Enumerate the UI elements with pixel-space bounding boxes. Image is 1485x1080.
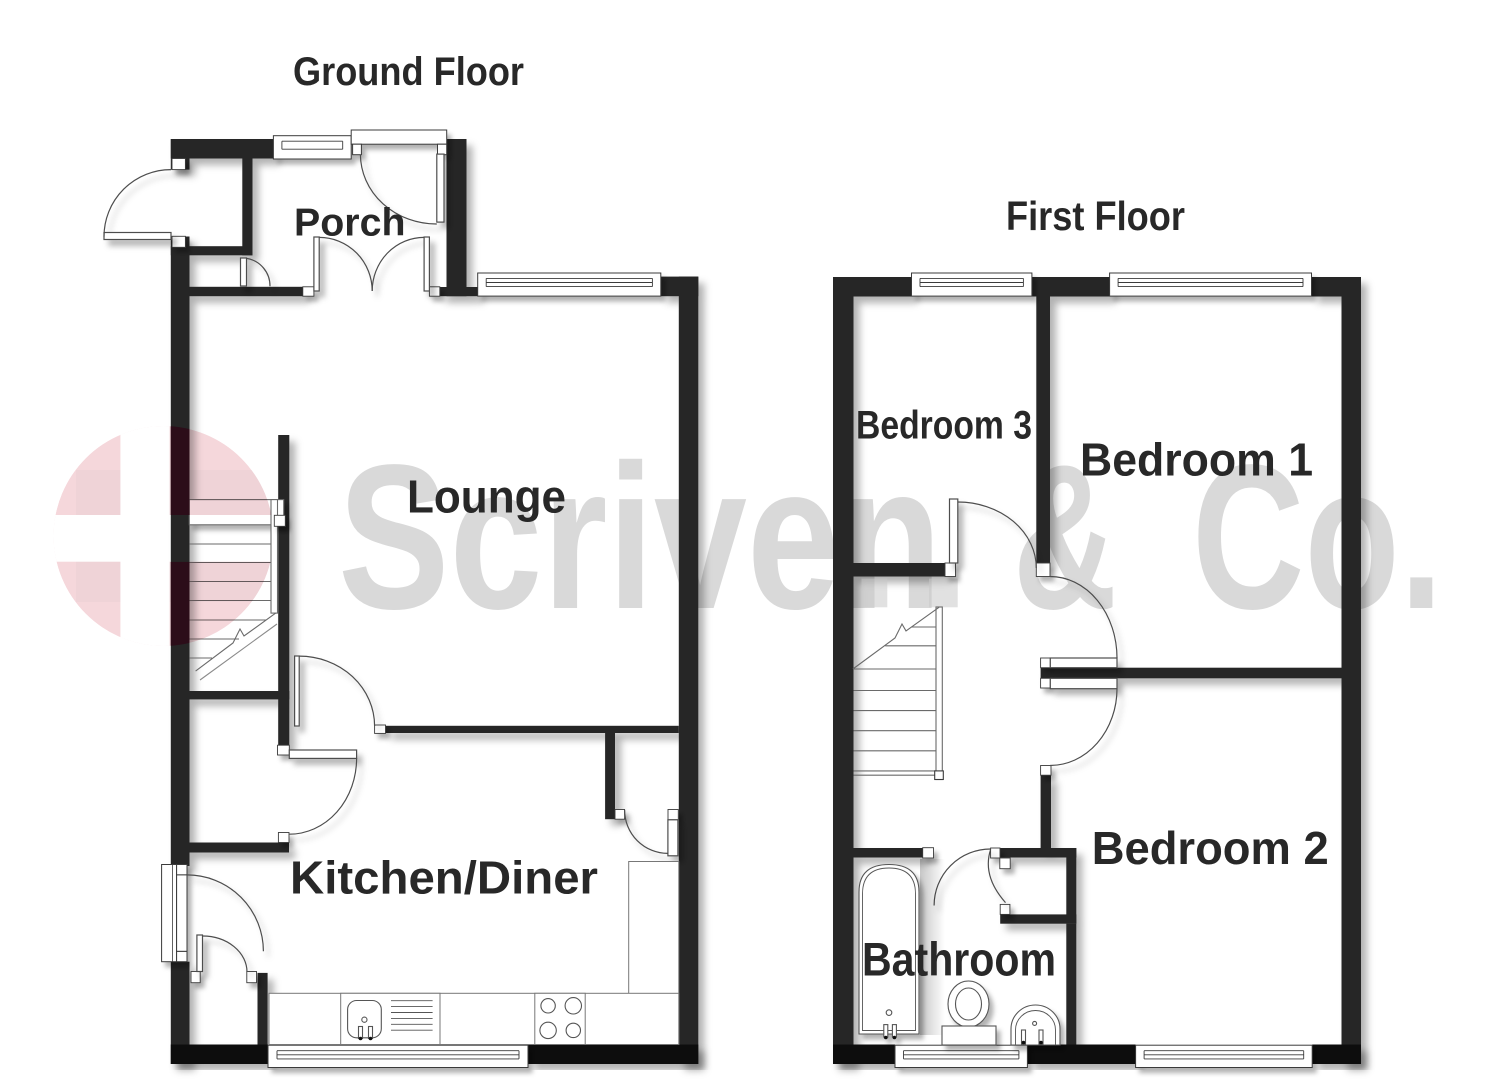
svg-text:First Floor: First Floor (1006, 193, 1185, 239)
svg-text:Kitchen/Diner: Kitchen/Diner (290, 851, 598, 903)
svg-text:Bedroom 1: Bedroom 1 (1080, 434, 1313, 486)
svg-text:Porch: Porch (294, 202, 406, 245)
svg-text:Lounge: Lounge (407, 471, 566, 523)
svg-text:Bedroom 3: Bedroom 3 (856, 404, 1032, 448)
svg-text:Bedroom 2: Bedroom 2 (1092, 822, 1329, 874)
svg-text:Ground Floor: Ground Floor (293, 50, 524, 94)
svg-text:Bathroom: Bathroom (862, 933, 1056, 986)
